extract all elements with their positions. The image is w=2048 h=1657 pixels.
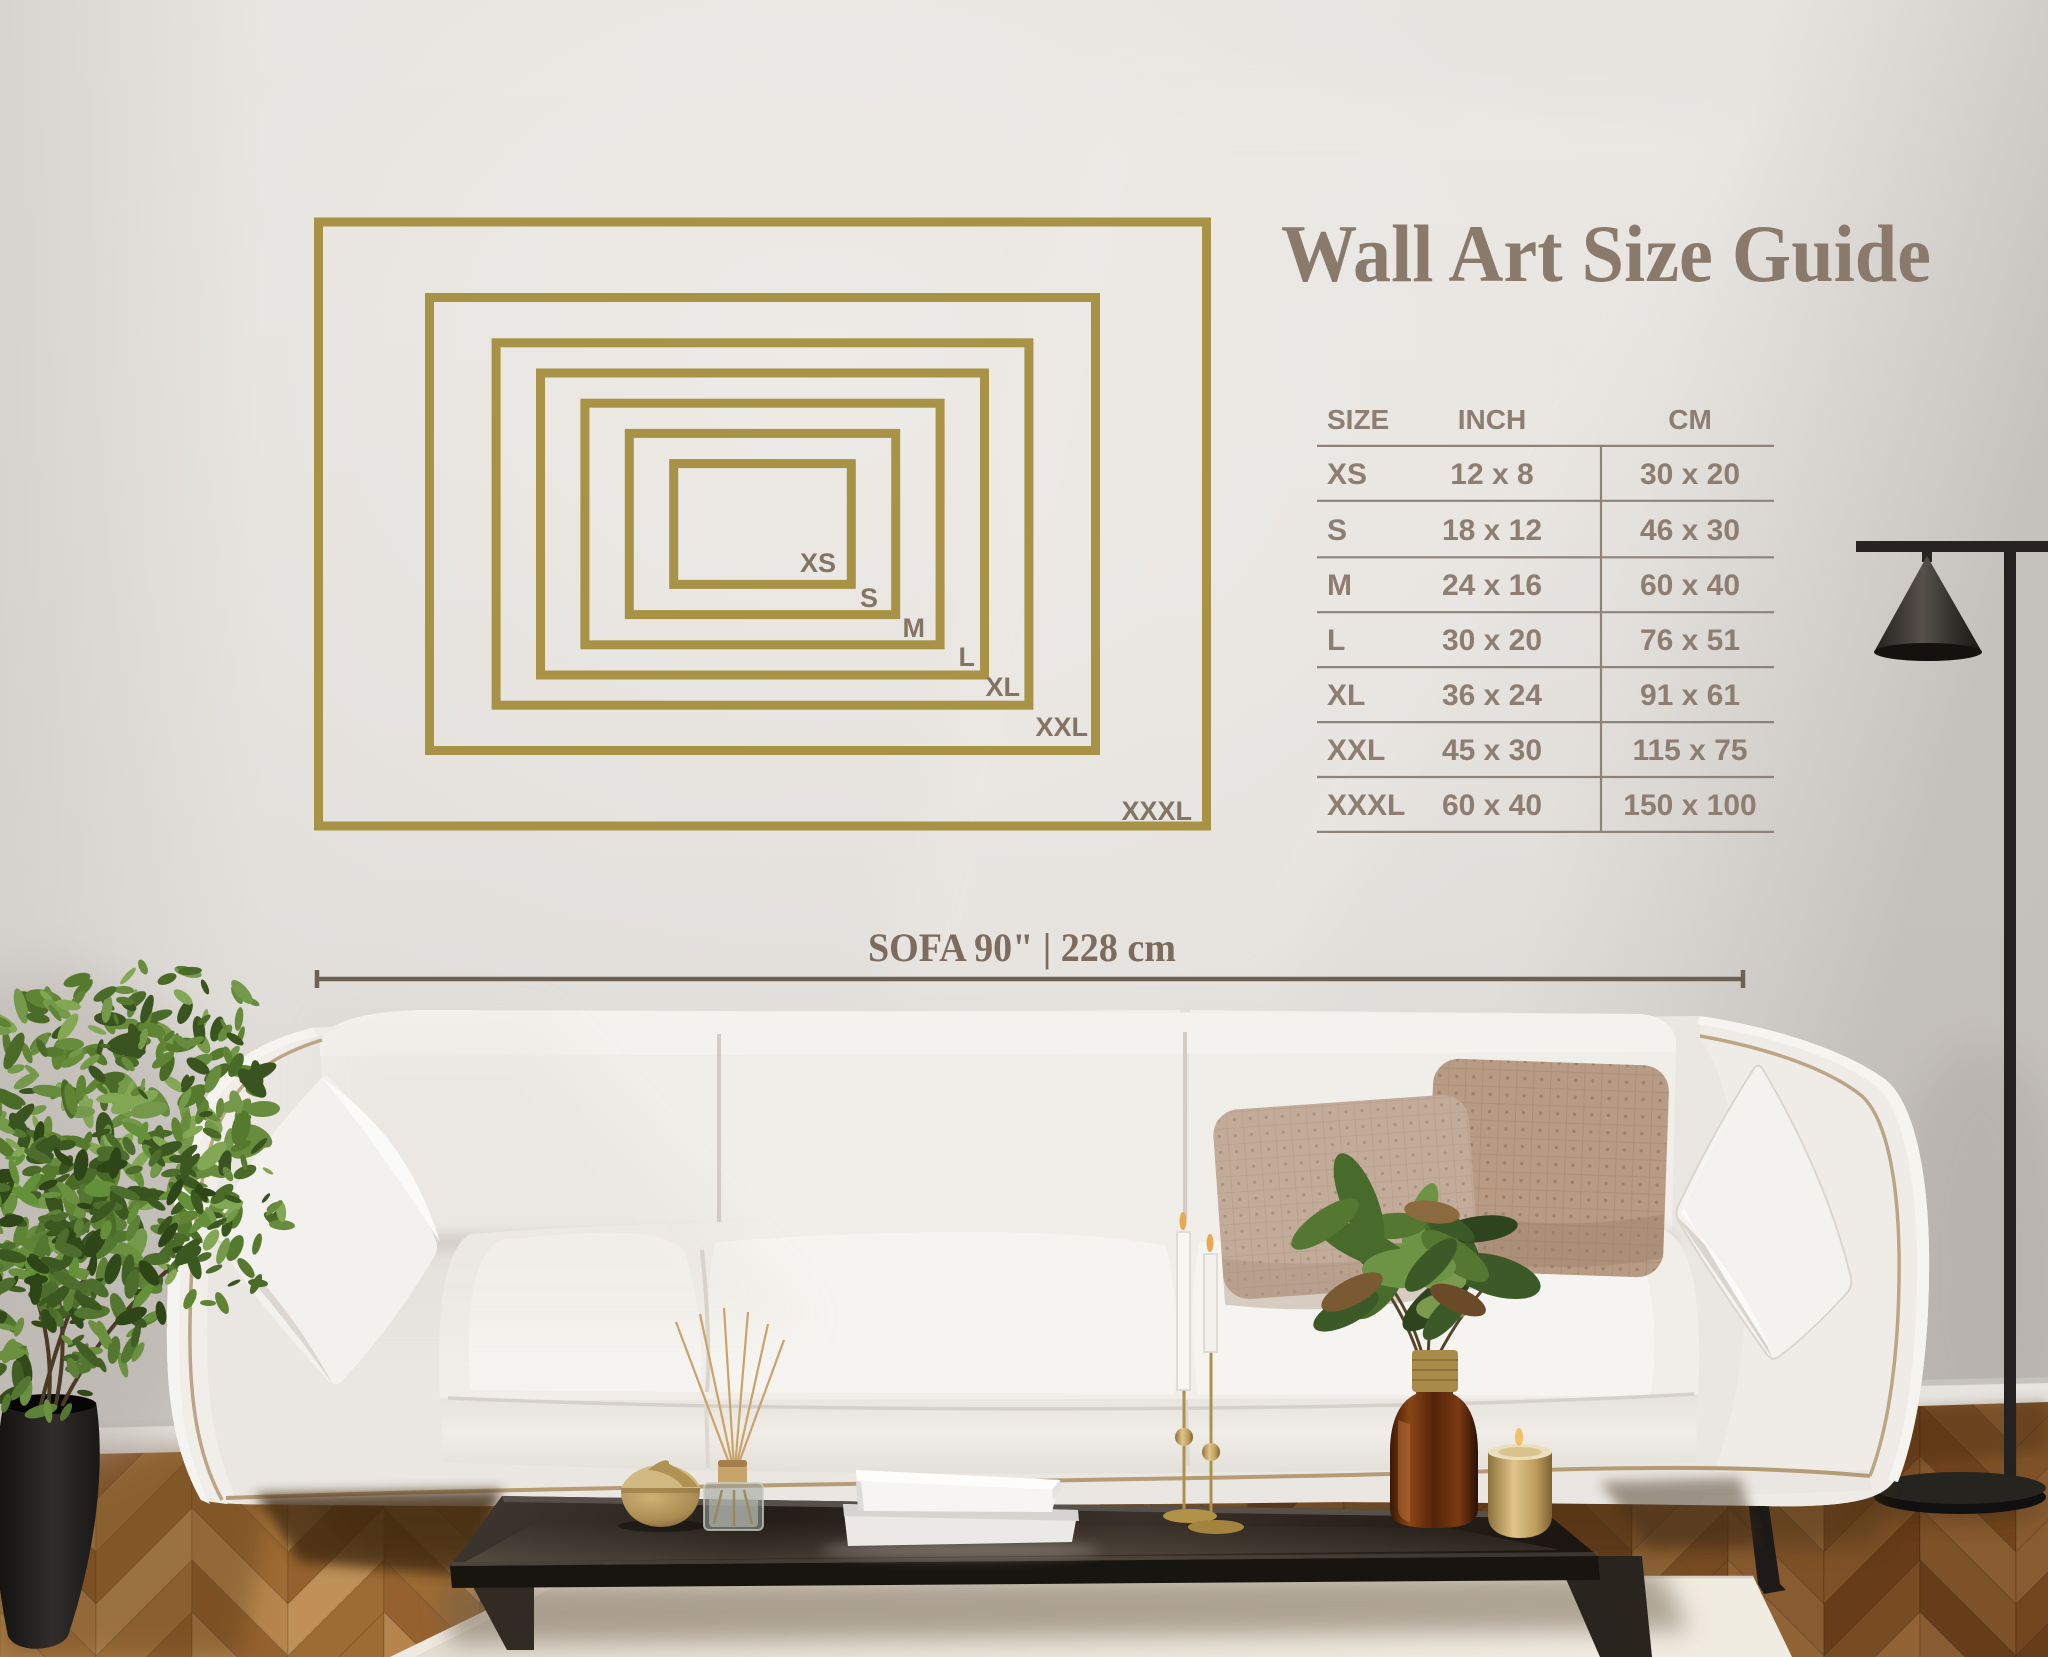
svg-text:INCH: INCH bbox=[1458, 404, 1526, 435]
svg-text:SOFA 90" | 228 cm: SOFA 90" | 228 cm bbox=[868, 925, 1176, 970]
svg-text:XS: XS bbox=[800, 548, 836, 578]
svg-text:XXXL: XXXL bbox=[1327, 789, 1405, 822]
svg-text:24 x 16: 24 x 16 bbox=[1442, 569, 1542, 602]
svg-text:SIZE: SIZE bbox=[1327, 404, 1389, 435]
svg-text:46 x 30: 46 x 30 bbox=[1640, 514, 1740, 547]
svg-text:XL: XL bbox=[985, 672, 1020, 702]
svg-text:L: L bbox=[959, 642, 976, 672]
svg-text:18 x 12: 18 x 12 bbox=[1442, 514, 1542, 547]
svg-text:M: M bbox=[1327, 569, 1352, 602]
svg-text:XXL: XXL bbox=[1035, 712, 1088, 742]
svg-text:60 x 40: 60 x 40 bbox=[1640, 569, 1740, 602]
svg-text:S: S bbox=[1327, 514, 1347, 547]
svg-text:S: S bbox=[860, 583, 878, 613]
svg-text:XL: XL bbox=[1327, 679, 1365, 712]
svg-text:CM: CM bbox=[1668, 404, 1712, 435]
svg-text:12 x 8: 12 x 8 bbox=[1450, 458, 1533, 491]
svg-text:Wall Art Size Guide: Wall Art Size Guide bbox=[1281, 208, 1931, 299]
svg-text:150 x 100: 150 x 100 bbox=[1623, 789, 1756, 822]
svg-text:L: L bbox=[1327, 624, 1345, 657]
svg-text:76 x 51: 76 x 51 bbox=[1640, 624, 1740, 657]
svg-text:115 x 75: 115 x 75 bbox=[1632, 734, 1747, 767]
svg-text:36 x 24: 36 x 24 bbox=[1442, 679, 1542, 712]
svg-text:XXXL: XXXL bbox=[1121, 796, 1192, 826]
svg-text:30 x 20: 30 x 20 bbox=[1442, 624, 1542, 657]
svg-text:XXL: XXL bbox=[1327, 734, 1385, 767]
svg-text:45 x 30: 45 x 30 bbox=[1442, 734, 1542, 767]
svg-text:M: M bbox=[903, 613, 926, 643]
svg-text:91 x 61: 91 x 61 bbox=[1640, 679, 1740, 712]
svg-text:30 x 20: 30 x 20 bbox=[1640, 458, 1740, 491]
svg-text:60 x 40: 60 x 40 bbox=[1442, 789, 1542, 822]
svg-text:XS: XS bbox=[1327, 458, 1367, 491]
